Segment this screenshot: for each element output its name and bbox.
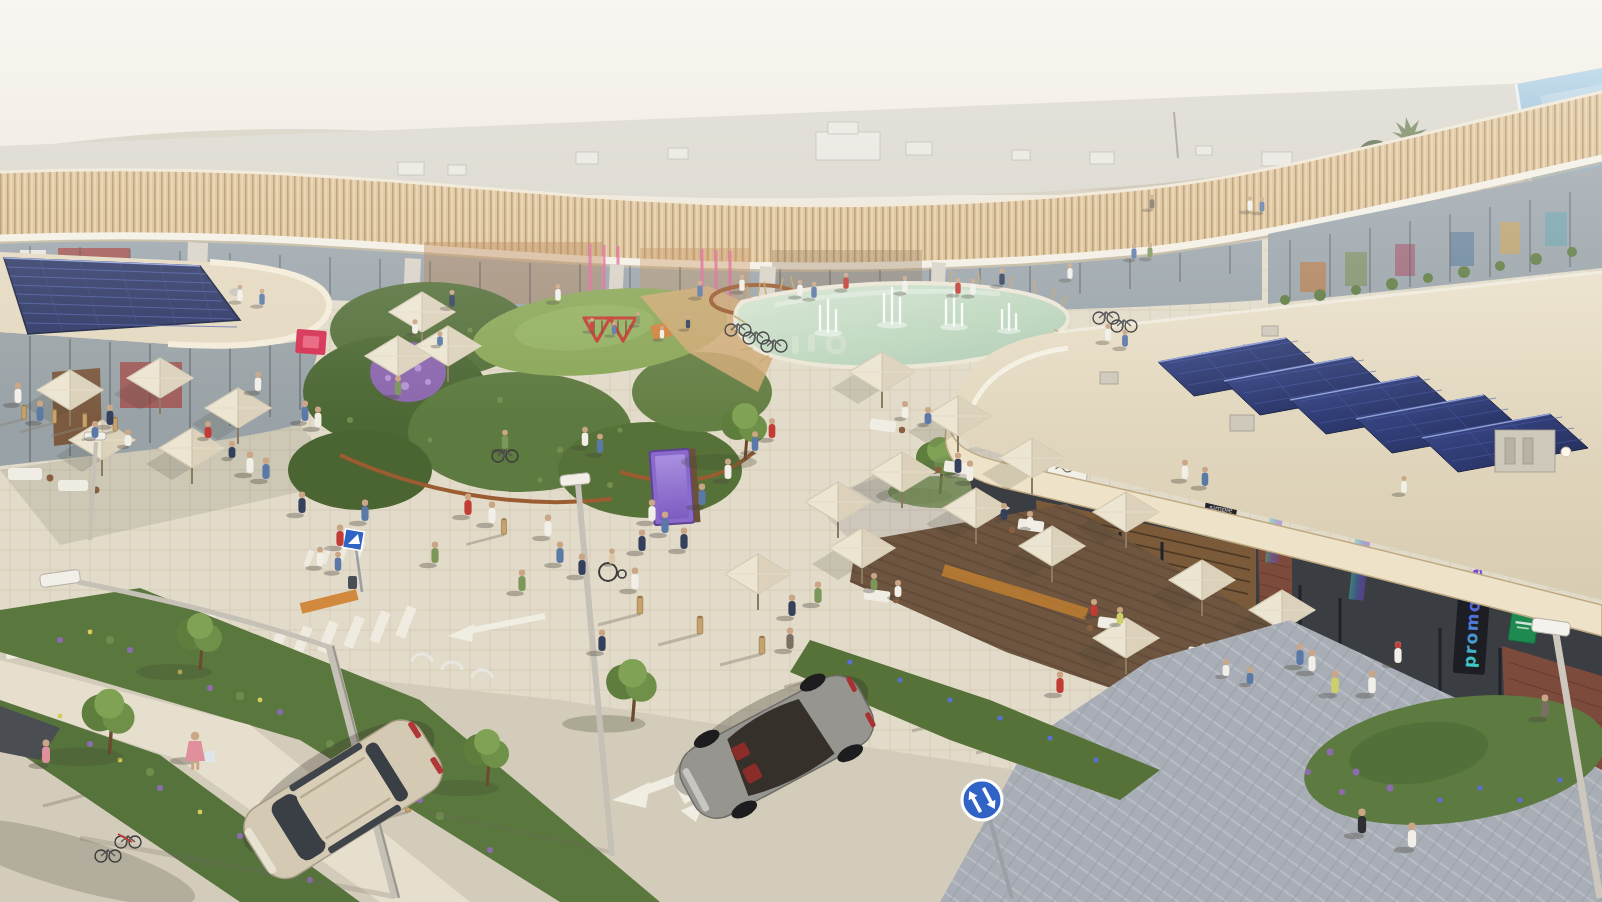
shrub-mass — [288, 430, 432, 510]
roof-vent — [1230, 415, 1254, 431]
red-square-sign — [295, 329, 327, 355]
roof-vent — [1100, 372, 1118, 384]
turn-sign-face — [962, 780, 1002, 820]
display — [1345, 252, 1367, 286]
cafe-table — [58, 480, 88, 491]
rooftop-penthouse — [816, 132, 880, 160]
cafe-table — [8, 468, 42, 480]
rolling-suitcase — [348, 576, 357, 589]
red-cap — [1395, 642, 1401, 648]
roof-vent — [1262, 326, 1278, 336]
display — [1395, 244, 1415, 276]
display — [1545, 212, 1567, 246]
hvac-unit — [1196, 146, 1212, 155]
hvac-unit — [668, 148, 688, 159]
display — [1500, 222, 1520, 254]
hvac-unit — [398, 162, 424, 175]
hvac-unit — [1090, 152, 1114, 164]
hvac-unit — [576, 152, 598, 164]
hvac-unit — [906, 142, 932, 155]
hvac-unit — [448, 165, 466, 175]
roof-light — [1561, 447, 1571, 457]
rooftop-penthouse-top — [828, 122, 858, 134]
shopping-bag — [205, 751, 215, 762]
hvac-unit — [1012, 150, 1030, 160]
cafe-chair — [47, 475, 54, 482]
display — [1300, 262, 1326, 292]
red-sign-mark — [303, 335, 320, 348]
mall-aerial-rendering: promocje simple — [0, 0, 1602, 902]
display — [1450, 232, 1474, 266]
